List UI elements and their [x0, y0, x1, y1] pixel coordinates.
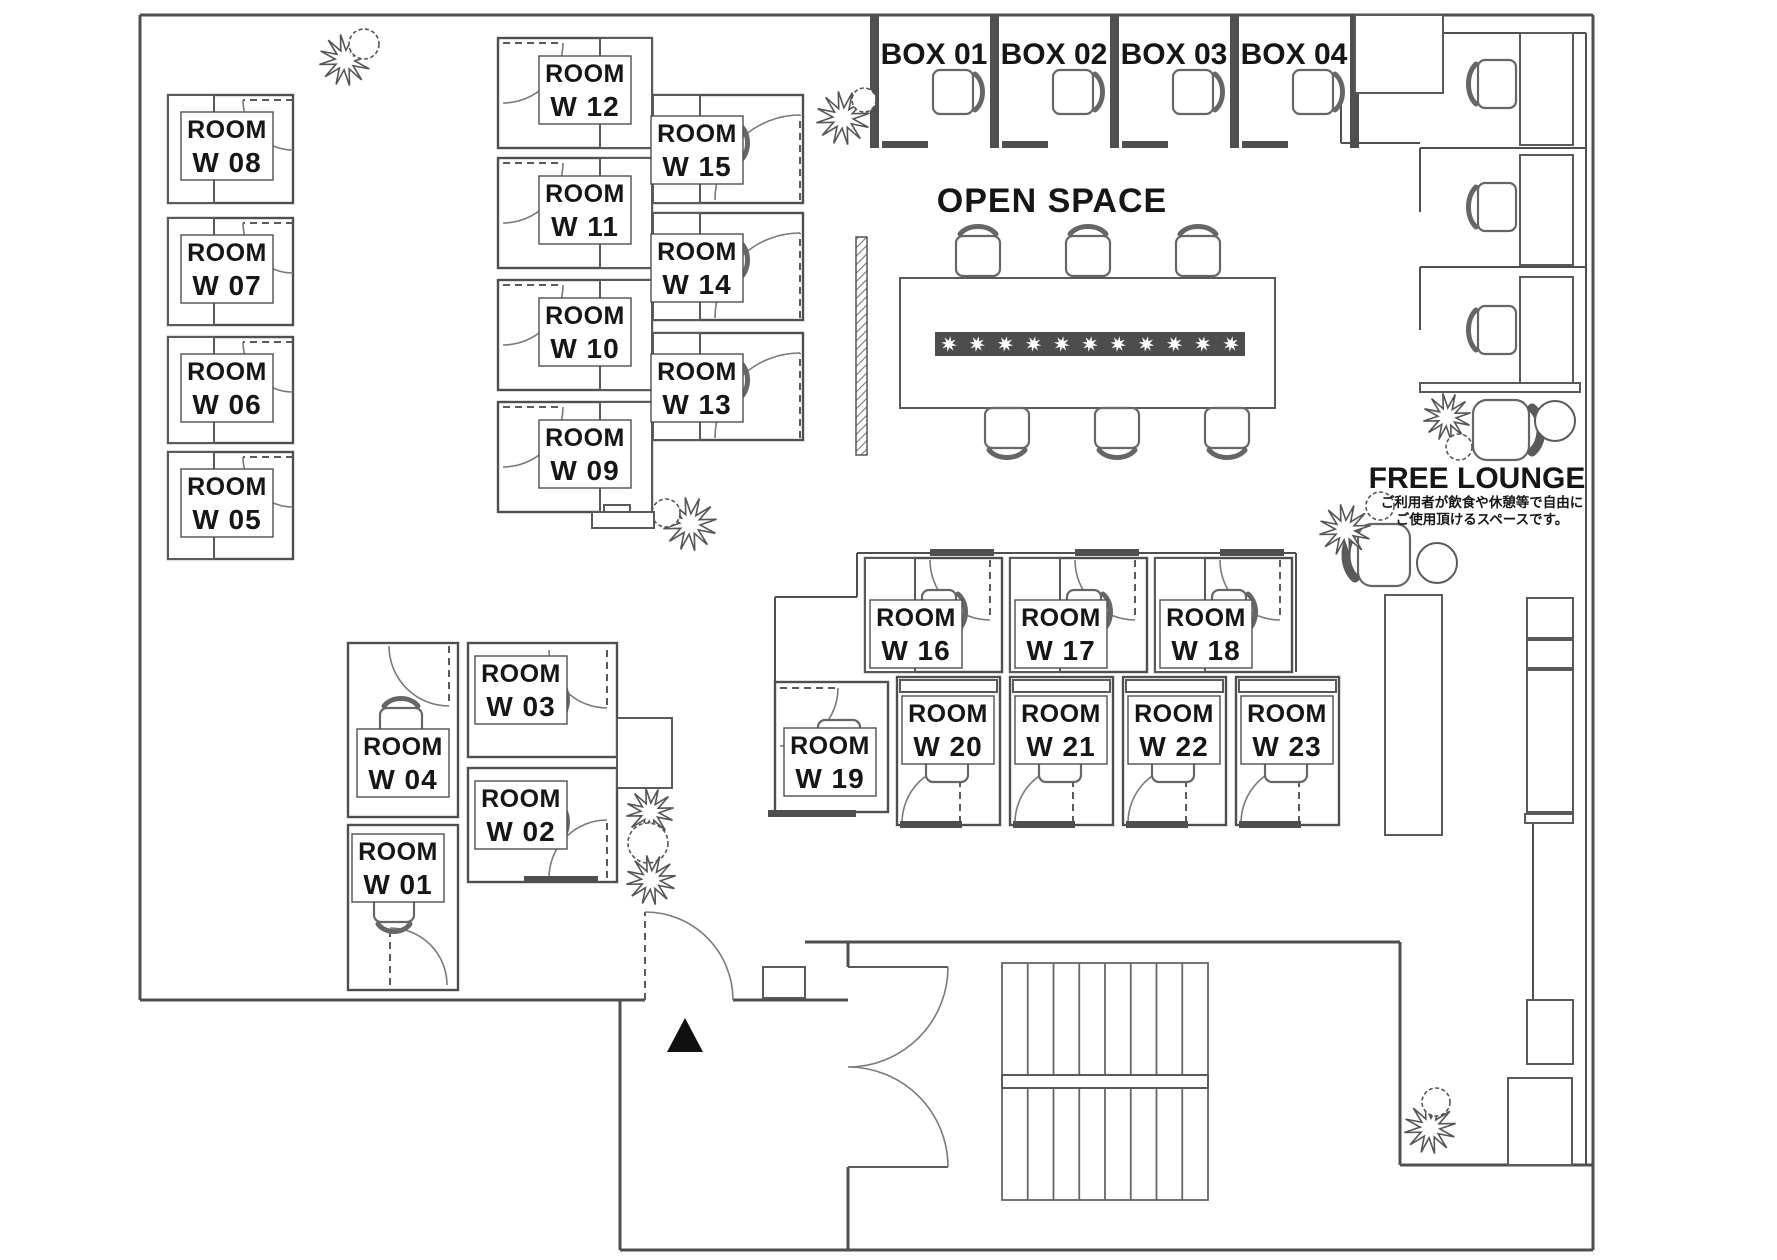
room-label-line1: ROOM — [1021, 604, 1101, 632]
chair-icon — [1066, 227, 1110, 277]
cabinet — [1527, 598, 1573, 638]
plant-icon — [1423, 393, 1472, 460]
box-sill — [1002, 141, 1048, 148]
room-label-line1: ROOM — [545, 424, 625, 452]
room-label-line1: ROOM — [1021, 700, 1101, 728]
room-label-line2: W 20 — [913, 731, 982, 762]
room-label-line2: W 17 — [1026, 635, 1095, 666]
door-sill — [1013, 821, 1075, 828]
stair-double-door — [848, 967, 948, 1167]
room-w02: ROOMW 02 — [468, 768, 617, 883]
stair-landing — [1002, 1075, 1208, 1088]
plant-icon — [816, 88, 876, 145]
side-table-top — [604, 505, 630, 512]
room-label-line1: ROOM — [545, 302, 625, 330]
room-label-line2: W 22 — [1139, 731, 1208, 762]
room-w17: ROOMW 17 — [1010, 549, 1147, 672]
room-label-line2: W 23 — [1252, 731, 1321, 762]
desk — [1126, 680, 1223, 692]
desk — [1013, 680, 1110, 692]
room-label-line1: ROOM — [657, 120, 737, 148]
room-label-line2: W 02 — [486, 816, 555, 847]
room-w15: ROOMW 15 — [651, 95, 803, 203]
door-sill — [900, 821, 962, 828]
cubicle-desk — [1520, 277, 1573, 385]
cubicle-desk — [1520, 155, 1573, 265]
room-w20: ROOMW 20 — [897, 677, 1000, 828]
box-sill — [882, 141, 928, 148]
room-label-line2: W 11 — [551, 211, 619, 242]
cabinet — [1527, 670, 1573, 812]
box-sill — [1242, 141, 1288, 148]
door-sill — [1126, 821, 1188, 828]
room-label-line2: W 10 — [550, 333, 619, 364]
floor-plan-svg: ROOMW 01ROOMW 02ROOMW 03ROOMW 04ROOMW 05… — [0, 0, 1777, 1260]
box-partition — [870, 15, 879, 148]
room-label-line2: W 06 — [192, 389, 261, 420]
room-w01: ROOMW 01 — [348, 825, 458, 990]
door-sill — [930, 549, 994, 556]
room-label-line1: ROOM — [1166, 604, 1246, 632]
partition-screen — [856, 237, 867, 455]
shelf — [1525, 814, 1573, 823]
room-label-line2: W 03 — [486, 691, 555, 722]
room-w05: ROOMW 05 — [168, 452, 293, 559]
room-w03: ROOMW 03 — [468, 643, 617, 757]
room-label-line2: W 16 — [881, 635, 950, 666]
room-w23: ROOMW 23 — [1236, 677, 1339, 828]
box-label: BOX 04 — [1241, 38, 1348, 71]
plant-icon — [1404, 1088, 1455, 1154]
chair-icon — [1173, 70, 1223, 114]
room-w04: ROOMW 04 — [348, 643, 458, 817]
room-label-line2: W 08 — [192, 147, 261, 178]
door-sill — [524, 876, 598, 883]
room-w10: ROOMW 10 — [498, 280, 652, 390]
room-label-line1: ROOM — [790, 732, 870, 760]
box-label: BOX 02 — [1001, 38, 1108, 71]
room-w19: ROOMW 19 — [768, 682, 888, 817]
box-partition — [990, 15, 999, 148]
room-w06: ROOMW 06 — [168, 337, 293, 443]
counter — [1385, 595, 1442, 835]
round-table — [1535, 401, 1575, 441]
cabinet — [1527, 1000, 1573, 1064]
room-label-line1: ROOM — [187, 116, 267, 144]
chair-icon — [1469, 306, 1517, 354]
room-w08: ROOMW 08 — [168, 95, 293, 203]
door-sill — [1220, 549, 1284, 556]
shelf — [1420, 383, 1580, 392]
room-label-line2: W 14 — [662, 269, 731, 300]
desk — [900, 680, 997, 692]
side-table — [592, 512, 654, 528]
room-label-line2: W 21 — [1026, 731, 1095, 762]
room-label-line1: ROOM — [908, 700, 988, 728]
box-4: BOX 04 — [1230, 15, 1348, 148]
box-3: BOX 03 — [1110, 15, 1227, 148]
room-w13: ROOMW 13 — [651, 333, 803, 440]
room-w07: ROOMW 07 — [168, 218, 293, 325]
chair-icon — [1293, 70, 1343, 114]
room-label-line2: W 07 — [192, 270, 261, 301]
box-partition — [1110, 15, 1119, 148]
stairs — [1002, 963, 1208, 1200]
room-label-line1: ROOM — [187, 239, 267, 267]
cabinet — [1527, 640, 1573, 668]
room-label-line1: ROOM — [876, 604, 956, 632]
room-label-line1: ROOM — [363, 733, 443, 761]
room-label-line1: ROOM — [545, 60, 625, 88]
floor-plan: ROOMW 01ROOMW 02ROOMW 03ROOMW 04ROOMW 05… — [0, 0, 1777, 1260]
room-label-line1: ROOM — [1134, 700, 1214, 728]
box-sill — [1122, 141, 1168, 148]
chair-icon — [1469, 60, 1517, 108]
chair-icon — [985, 408, 1029, 458]
room-label-line1: ROOM — [358, 838, 438, 866]
plant-icon — [652, 497, 717, 550]
plant-icon — [319, 29, 379, 86]
room-label-line1: ROOM — [657, 238, 737, 266]
cubicle-desk — [1520, 33, 1573, 145]
chair-icon — [1205, 408, 1249, 458]
chair-icon — [1095, 408, 1139, 458]
room-label-line2: W 19 — [795, 763, 864, 794]
room-label-line1: ROOM — [187, 358, 267, 386]
room-label-line1: ROOM — [481, 660, 561, 688]
room-w22: ROOMW 22 — [1123, 677, 1226, 828]
open-space — [900, 227, 1275, 458]
room-label-line2: W 18 — [1171, 635, 1240, 666]
room-w11: ROOMW 11 — [498, 158, 652, 268]
room-w14: ROOMW 14 — [651, 213, 803, 320]
locker — [1355, 15, 1443, 93]
box-label: BOX 03 — [1121, 38, 1228, 71]
free-lounge-note-line1: ご利用者が飲食や休憩等で自由に — [1381, 494, 1584, 510]
free-lounge-label: FREE LOUNGE — [1369, 462, 1586, 495]
box-1: BOX 01 — [870, 15, 987, 148]
door-sill — [1239, 821, 1301, 828]
room-label-line2: W 04 — [368, 764, 437, 795]
room-label-line1: ROOM — [481, 785, 561, 813]
room-label-line2: W 01 — [363, 869, 432, 900]
entrance-door — [645, 912, 733, 1000]
room-w21: ROOMW 21 — [1010, 677, 1113, 828]
box-partition — [1230, 15, 1239, 148]
room-label-line1: ROOM — [1247, 700, 1327, 728]
chair-icon — [1176, 227, 1220, 277]
room-label-line1: ROOM — [545, 180, 625, 208]
armchair-icon — [1473, 400, 1541, 460]
room-label-line1: ROOM — [187, 473, 267, 501]
room-label-line2: W 05 — [192, 504, 261, 535]
free-lounge-note-line2: ご使用頂けるスペースです。 — [1396, 511, 1569, 527]
step — [763, 967, 805, 998]
room-label-line2: W 12 — [550, 91, 619, 122]
box-2: BOX 02 — [990, 15, 1107, 148]
entrance-marker — [667, 1018, 703, 1052]
plant-icon — [626, 788, 673, 863]
room-label-line2: W 09 — [550, 455, 619, 486]
box-label: BOX 01 — [881, 38, 988, 71]
door-sill — [1075, 549, 1139, 556]
round-table — [1417, 543, 1457, 583]
room-w16: ROOMW 16 — [865, 549, 1002, 672]
desk — [1239, 680, 1336, 692]
room-label-line2: W 15 — [662, 151, 731, 182]
cabinet — [1508, 1078, 1572, 1165]
room-label-line1: ROOM — [657, 358, 737, 386]
chair-icon — [1053, 70, 1103, 114]
room-w09: ROOMW 09 — [498, 402, 652, 512]
room-w18: ROOMW 18 — [1155, 549, 1292, 672]
door-sill — [768, 810, 856, 817]
open-space-label: OPEN SPACE — [937, 182, 1167, 220]
room-label-line2: W 13 — [662, 389, 731, 420]
chair-icon — [956, 227, 1000, 277]
chair-icon — [1469, 183, 1517, 231]
room-w12: ROOMW 12 — [498, 38, 652, 148]
chair-icon — [933, 70, 983, 114]
closet — [617, 718, 672, 788]
